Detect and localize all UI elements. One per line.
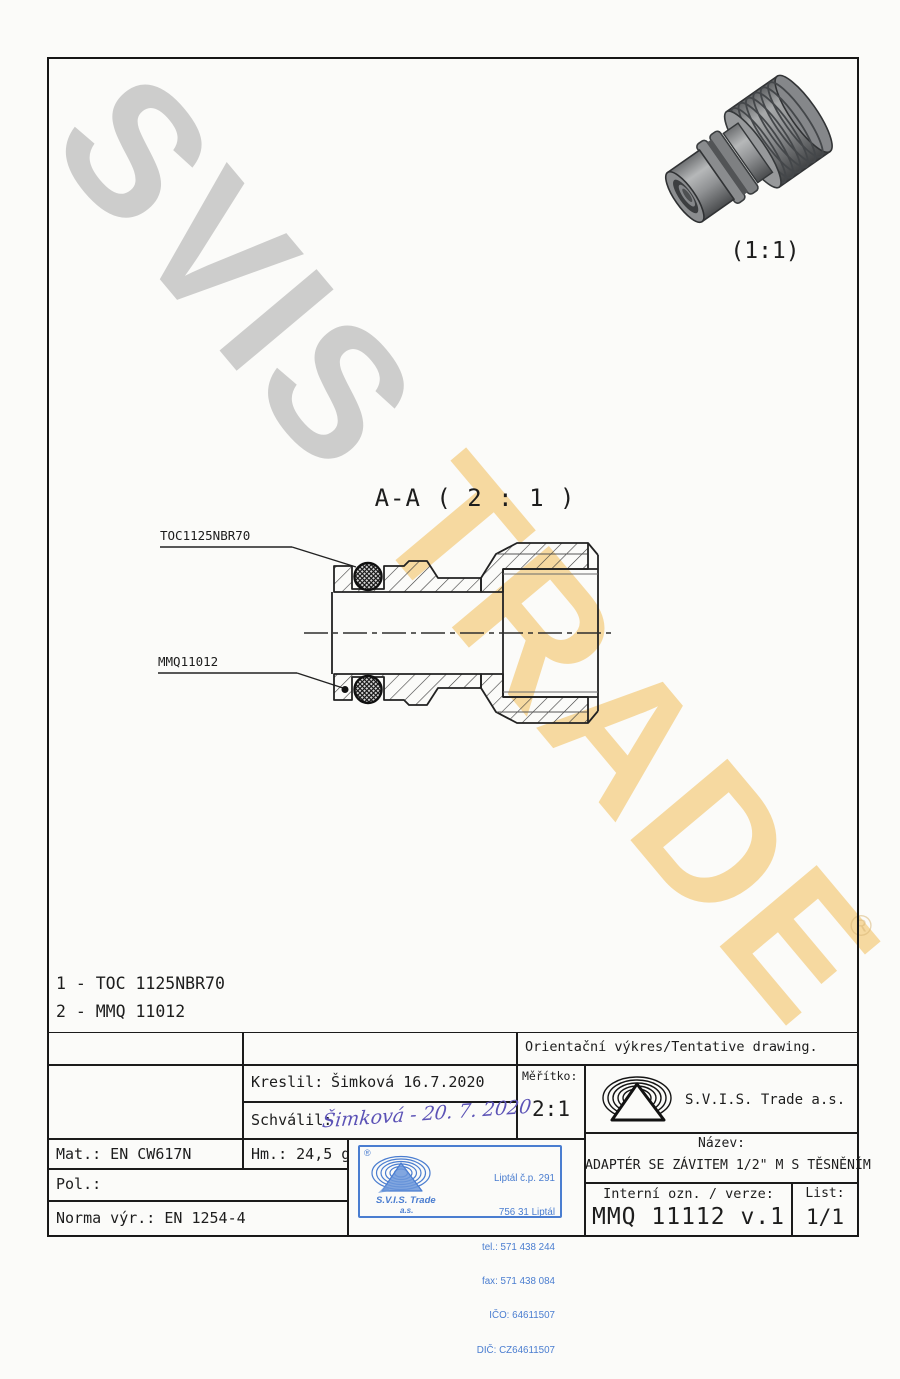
preview-scale-label: (1:1) [715, 238, 815, 264]
titleblock-empty-cell-c [47, 1064, 244, 1140]
oring-part-label: TOC1125NBR70 [160, 528, 250, 543]
interni-cell: Interní ozn. / verze: MMQ 11112 v.1 [584, 1182, 793, 1237]
body-part-label: MMQ11012 [158, 654, 218, 669]
kreslil-value: Šimková 16.7.2020 [331, 1073, 485, 1091]
stamp-address-line: fax: 571 438 084 [477, 1276, 555, 1287]
titleblock-empty-cell-a [47, 1032, 244, 1066]
titleblock-empty-cell-b [242, 1032, 518, 1066]
schvalil-label: Schválil: [251, 1111, 332, 1129]
interni-label: Interní ozn. / verze: [585, 1186, 792, 1202]
stamp-company-suffix: a.s. [400, 1206, 413, 1215]
parts-list-item-2: 2 - MMQ 11012 [56, 1002, 185, 1021]
list-cell: List: 1/1 [791, 1182, 859, 1237]
kreslil-cell: Kreslil: Šimková 16.7.2020 [242, 1064, 518, 1103]
section-view-drawing [140, 515, 700, 750]
stamp-address-line: DIČ: CZ64611507 [477, 1345, 555, 1356]
material-cell: Mat.: EN CW617N [47, 1138, 244, 1170]
norm-cell: Norma výr.: EN 1254-4 [47, 1200, 349, 1237]
stamp-address-line: 756 31 Liptál [477, 1207, 555, 1218]
position-cell: Pol.: [47, 1168, 349, 1202]
weight-cell: Hm.: 24,5 g [242, 1138, 349, 1170]
nazev-label: Název: [585, 1136, 858, 1151]
company-stamp: ® S.V.I.S. Trade a.s. Liptál č.p. 291 75… [358, 1145, 562, 1218]
company-name: S.V.I.S. Trade a.s. [685, 1092, 845, 1108]
stamp-address-line: tel.: 571 438 244 [477, 1242, 555, 1253]
interni-value: MMQ 11112 v.1 [585, 1204, 792, 1230]
stamp-address-line: Liptál č.p. 291 [477, 1173, 555, 1184]
list-label: List: [792, 1186, 858, 1201]
list-value: 1/1 [792, 1205, 858, 1229]
section-view-title: A-A ( 2 : 1 ) [360, 484, 590, 512]
scanned-technical-drawing: { "page": { "background_color": "#fbfbf9… [0, 0, 900, 1288]
svis-logo-icon [601, 1075, 673, 1123]
stamp-address-line: IČO: 64611507 [477, 1310, 555, 1321]
stamp-company-name: S.V.I.S. Trade [376, 1195, 436, 1206]
stamp-address: Liptál č.p. 291 756 31 Liptál tel.: 571 … [477, 1150, 555, 1379]
meritko-label: Měřítko: [522, 1069, 577, 1083]
nazev-value: ADAPTÉR SE ZÁVITEM 1/2" M S TĚSNĚNÍM [585, 1158, 858, 1173]
tentative-note-cell: Orientační výkres/Tentative drawing. [516, 1032, 859, 1066]
part-3d-preview [650, 58, 855, 240]
company-logo-cell: S.V.I.S. Trade a.s. [584, 1064, 859, 1134]
nazev-cell: Název: ADAPTÉR SE ZÁVITEM 1/2" M S TĚSNĚ… [584, 1132, 859, 1184]
parts-list-item-1: 1 - TOC 1125NBR70 [56, 974, 225, 993]
svis-stamp-logo-icon [370, 1155, 432, 1197]
kreslil-label: Kreslil: [251, 1073, 323, 1091]
